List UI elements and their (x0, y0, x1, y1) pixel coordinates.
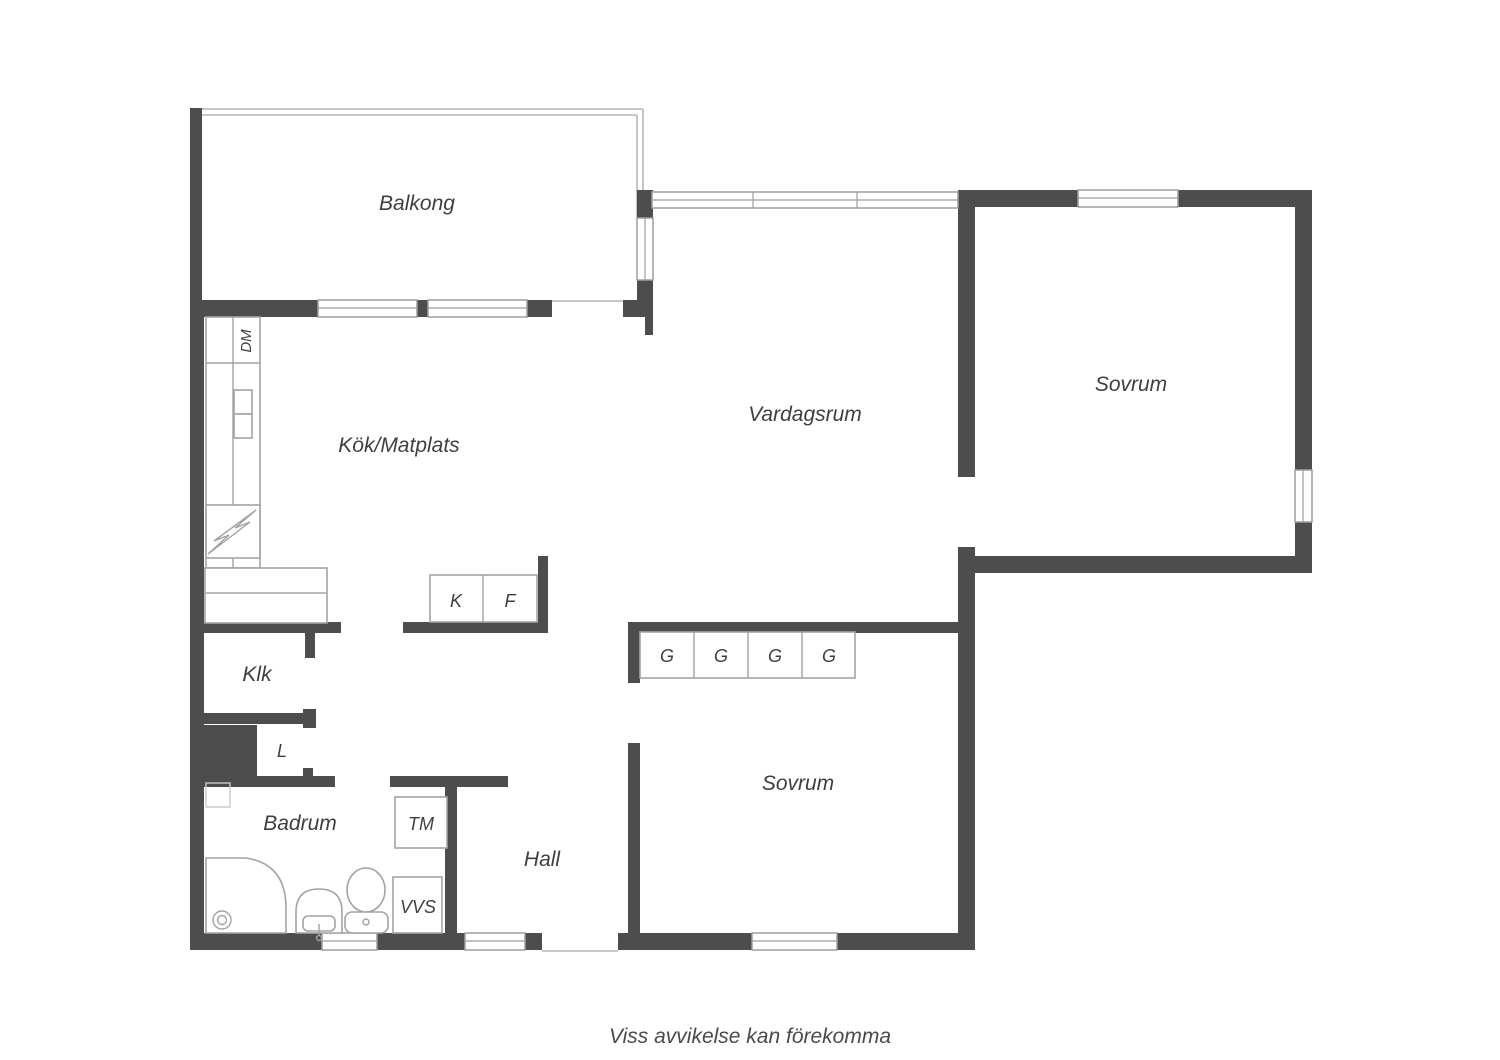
wall-segment (525, 933, 542, 950)
wall-segment (190, 108, 202, 300)
window (428, 300, 527, 317)
wall-segment (303, 709, 316, 728)
kitchen-fixtures (205, 317, 537, 623)
closet-solid-block (204, 725, 257, 776)
wall-segment (628, 622, 640, 683)
room-label-kitchen: Kök/Matplats (338, 434, 460, 457)
wall-segment (967, 556, 1312, 573)
wall-segment (1178, 190, 1312, 207)
walls (190, 108, 1312, 950)
wall-segment (390, 776, 508, 787)
room-label-hall: Hall (524, 848, 562, 871)
kitchen-sink-icon (234, 390, 252, 414)
room-label-living-room: Vardagsrum (748, 403, 862, 426)
wall-segment (623, 300, 653, 317)
room-label-bedroom-upper: Sovrum (1095, 373, 1167, 396)
wall-segment (628, 743, 640, 950)
kitchen-counter-lower (205, 568, 327, 623)
label-linen-closet: L (277, 741, 287, 761)
label-fridge: K (450, 591, 463, 611)
kitchen-sink-icon (234, 414, 252, 438)
wall-segment (303, 768, 313, 776)
window (465, 933, 525, 950)
wall-segment (190, 300, 318, 317)
room-label-closet: Klk (242, 663, 273, 686)
label-plumbing: VVS (400, 897, 436, 917)
wall-segment (527, 300, 552, 317)
wall-segment (305, 633, 315, 658)
label-wardrobe: G (822, 646, 836, 666)
label-wardrobe: G (660, 646, 674, 666)
wall-segment (958, 547, 975, 950)
window (752, 933, 837, 950)
wall-segment (538, 556, 548, 622)
window (322, 933, 377, 950)
wall-segment (637, 190, 653, 218)
wall-segment (417, 300, 428, 317)
window (318, 300, 417, 317)
room-label-balcony: Balkong (379, 192, 455, 215)
wall-segment (958, 190, 975, 477)
wall-segment (190, 933, 322, 950)
wall-segment (403, 622, 548, 633)
toilet-tank-icon (345, 912, 388, 933)
disclaimer-caption: Viss avvikelse kan förekomma (609, 1025, 891, 1048)
room-label-bedroom-lower: Sovrum (762, 772, 834, 795)
wall-segment (837, 933, 975, 950)
floor-plan-drawing: Balkong Kök/Matplats Vardagsrum Sovrum S… (0, 0, 1500, 1060)
wall-segment (637, 280, 653, 300)
label-wardrobe: G (768, 646, 782, 666)
wall-segment (377, 933, 465, 950)
window-band-living-room (652, 192, 958, 208)
wall-segment (645, 317, 653, 335)
label-washing-machine: TM (408, 814, 434, 834)
window (1078, 190, 1178, 207)
label-dishwasher: DM (238, 329, 255, 353)
wall-segment (958, 190, 1078, 207)
toilet-bowl-icon (347, 868, 385, 912)
floor-plan-page: Balkong Kök/Matplats Vardagsrum Sovrum S… (0, 0, 1500, 1060)
label-freezer: F (505, 591, 517, 611)
window (637, 218, 653, 280)
wall-segment (190, 776, 335, 787)
label-wardrobe: G (714, 646, 728, 666)
wall-segment (1295, 207, 1312, 470)
room-label-bathroom: Badrum (263, 812, 337, 835)
wall-segment (190, 713, 307, 724)
window (1295, 470, 1312, 522)
